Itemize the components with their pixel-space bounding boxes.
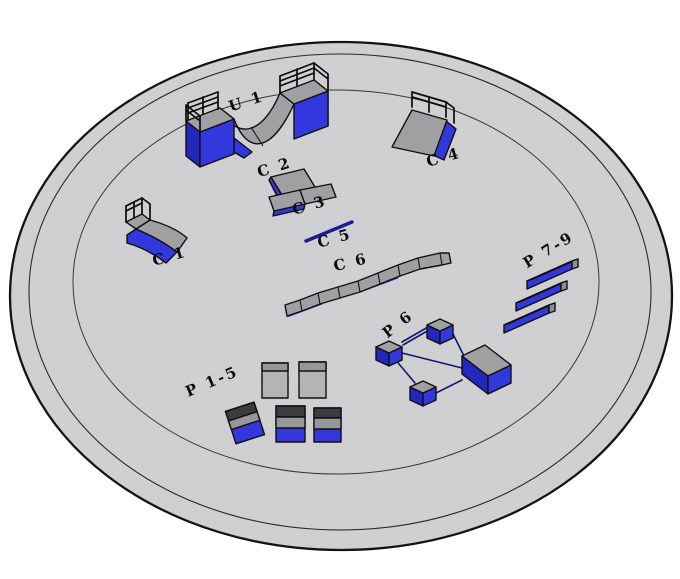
circular-platform <box>0 30 680 579</box>
diagram-canvas: U 1 C 1 C 2 C 3 C 4 C 5 C 6 P 1-5 P 6 P … <box>0 0 680 579</box>
p6-small-box-left <box>376 341 402 366</box>
p4-box <box>276 406 305 442</box>
p1-tall-pad <box>262 363 288 398</box>
p6-small-box-bottom <box>410 381 436 406</box>
p5-box <box>314 408 341 442</box>
skatepark-3d-diagram: U 1 C 1 C 2 C 3 C 4 C 5 C 6 P 1-5 P 6 P … <box>0 0 680 579</box>
p2-tall-pad <box>299 362 326 398</box>
concrete-texture <box>0 30 680 579</box>
p6-small-box-top <box>427 319 453 344</box>
